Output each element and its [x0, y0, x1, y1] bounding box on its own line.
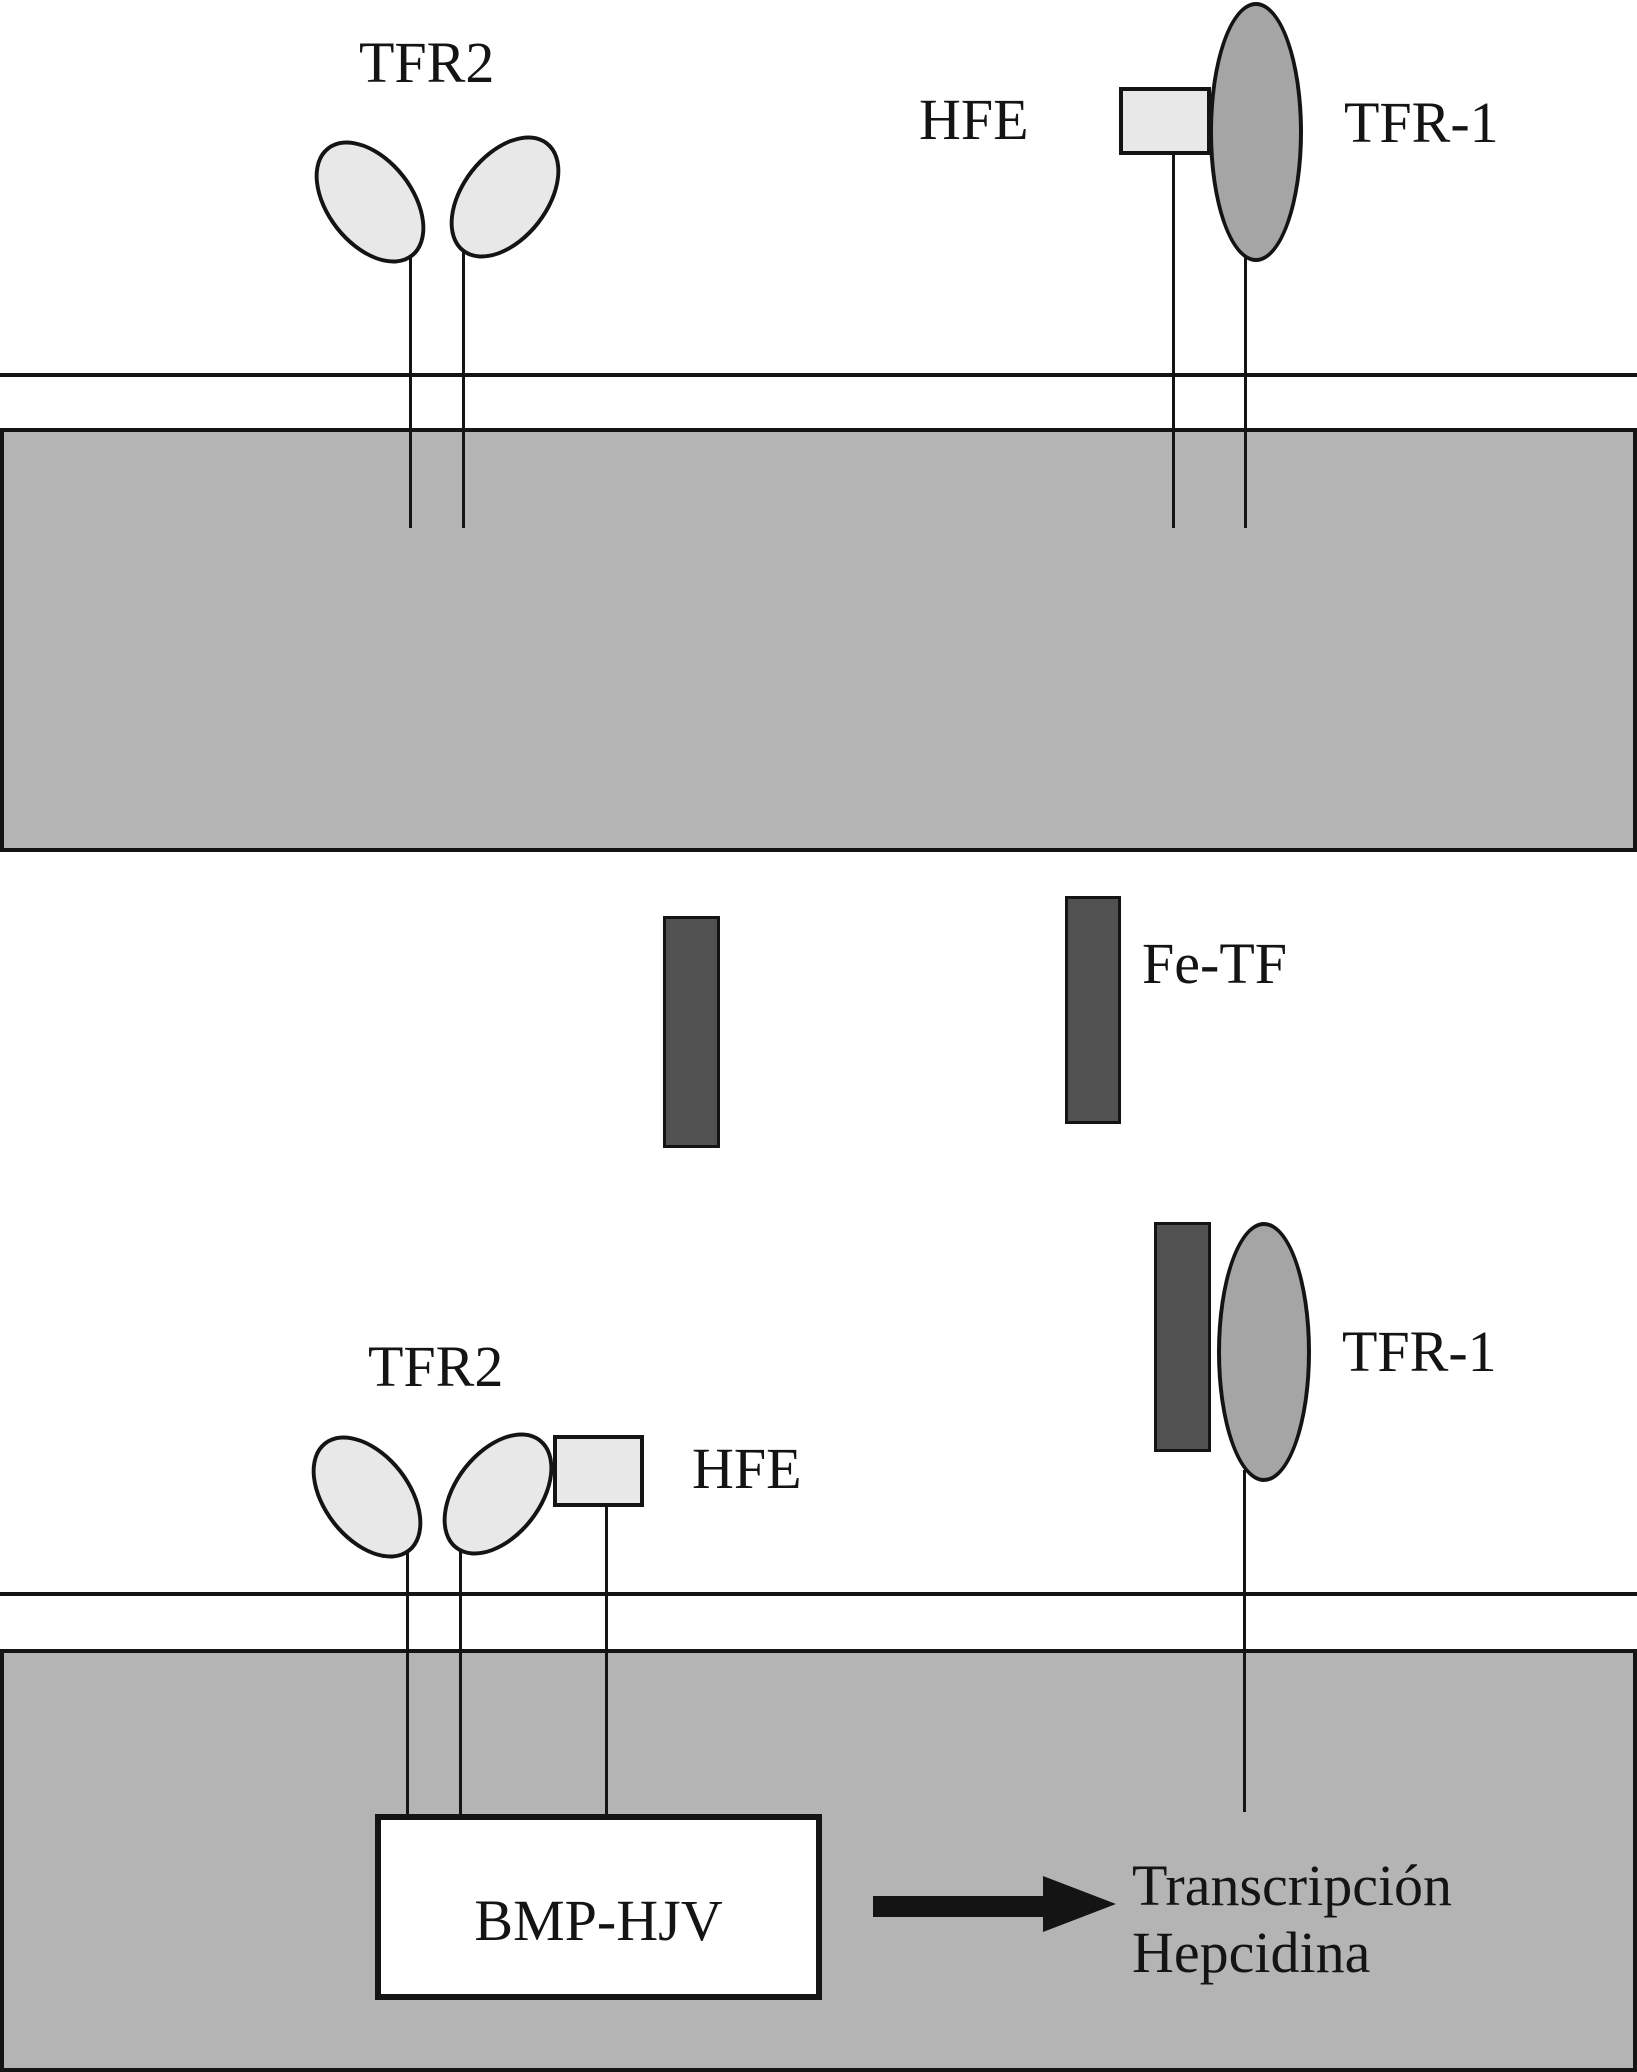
outer-membrane-line-top: [0, 373, 1637, 377]
bmp-hjv-label: BMP-HJV: [381, 1892, 816, 1950]
outer-membrane-line-bottom: [0, 1592, 1637, 1596]
membrane-band-top: [0, 428, 1637, 852]
hfe-bottom-protein: [553, 1435, 644, 1507]
tfr2-bottom-stalk-right: [459, 1542, 462, 1814]
fe-tf-ligand-left: [663, 916, 720, 1148]
tfr1-bottom-receptor: [1217, 1222, 1311, 1482]
tfr2-bottom-stalk-left: [406, 1545, 409, 1814]
hfe-top-label: HFE: [919, 91, 1029, 149]
transcription-line2: Hepcidina: [1132, 1919, 1452, 1986]
transcription-arrow-shaft: [873, 1896, 1045, 1917]
fe-tf-label: Fe-TF: [1142, 935, 1287, 993]
hfe-top-stalk: [1172, 150, 1175, 528]
tfr1-bottom-stalk: [1243, 1470, 1246, 1812]
tfr1-top-label: TFR-1: [1344, 94, 1499, 152]
transcription-arrow-head-icon: [1043, 1876, 1116, 1932]
transcription-line1: Transcripción: [1132, 1852, 1452, 1919]
hepcidin-regulation-diagram: TFR2 HFE TFR-1 Fe-TF TFR-1 TFR2 HFE BMP-…: [0, 0, 1637, 2072]
hfe-top-protein: [1119, 87, 1211, 155]
tfr2-bottom-label: TFR2: [368, 1338, 503, 1396]
tfr1-bottom-label: TFR-1: [1342, 1323, 1497, 1381]
bmp-hjv-complex-box: BMP-HJV: [375, 1814, 822, 2000]
tfr1-top-stalk: [1244, 250, 1247, 528]
fe-tf-bound-bottom: [1154, 1222, 1211, 1452]
tfr2-top-stalk-right: [462, 248, 465, 528]
tfr2-top-stalk-left: [409, 250, 412, 528]
tfr1-top-receptor: [1209, 2, 1303, 262]
hepcidin-transcription-label: Transcripción Hepcidina: [1132, 1852, 1452, 1986]
tfr2-top-lobe-left: [292, 120, 448, 284]
hfe-bottom-label: HFE: [692, 1440, 802, 1498]
fe-tf-ligand-right: [1065, 896, 1121, 1124]
hfe-bottom-stalk: [605, 1500, 608, 1814]
tfr2-top-lobe-right: [427, 115, 583, 279]
tfr2-top-label: TFR2: [359, 34, 494, 92]
tfr2-bottom-lobe-left: [289, 1415, 445, 1579]
